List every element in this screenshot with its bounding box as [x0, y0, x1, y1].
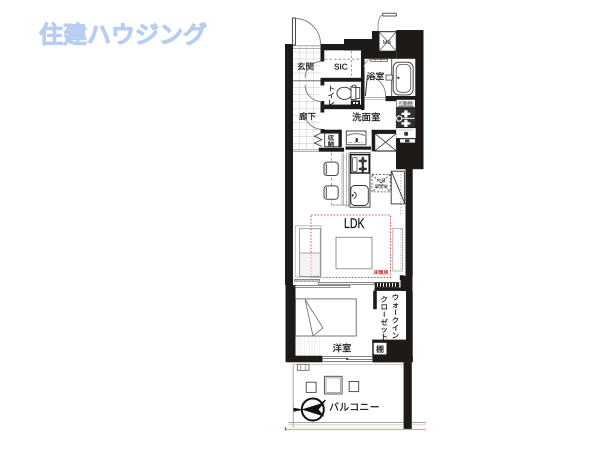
svg-text:洗面室: 洗面室 [352, 112, 381, 124]
svg-text:納: 納 [328, 140, 334, 148]
svg-text:庫置場: 庫置場 [375, 184, 389, 189]
svg-text:レ: レ [328, 99, 335, 107]
svg-text:ォ: ォ [392, 301, 399, 310]
svg-text:ト: ト [380, 332, 387, 341]
svg-text:バルコニー: バルコニー [329, 402, 380, 414]
svg-text:ロ: ロ [380, 303, 387, 312]
svg-text:床暖房: 床暖房 [374, 269, 389, 276]
svg-text:浴室: 浴室 [367, 71, 385, 81]
svg-text:イ: イ [328, 92, 335, 100]
svg-text:ン: ン [392, 331, 399, 340]
svg-text:冷蔵: 冷蔵 [377, 178, 386, 183]
svg-text:SIC: SIC [334, 62, 348, 71]
svg-text:洋室: 洋室 [333, 343, 352, 355]
svg-text:ト: ト [328, 85, 335, 93]
svg-text:住建ハウジング: 住建ハウジング [39, 22, 207, 49]
svg-text:玄関: 玄関 [297, 62, 314, 72]
svg-text:棚: 棚 [376, 345, 384, 354]
svg-text:廊下: 廊下 [299, 112, 317, 122]
svg-text:MB: MB [383, 40, 392, 46]
svg-text:LDK: LDK [344, 215, 365, 231]
